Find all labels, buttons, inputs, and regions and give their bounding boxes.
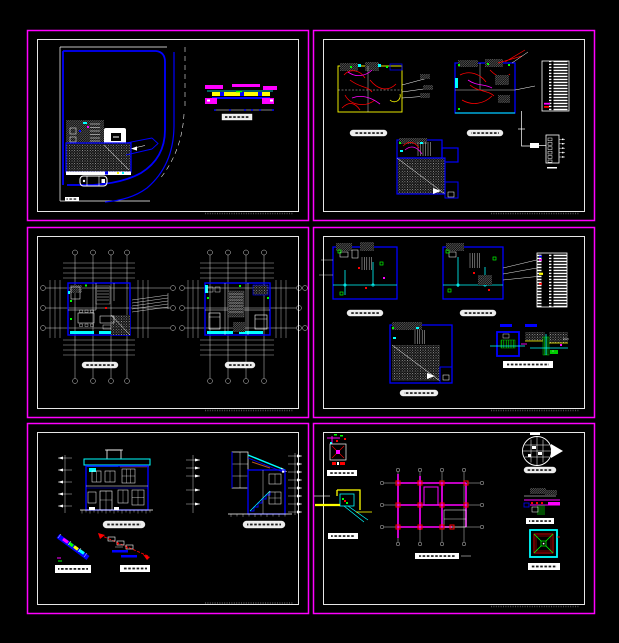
front-elevation: [80, 450, 153, 514]
sheet-border: [28, 228, 309, 418]
site-plan-drawing: [60, 47, 185, 202]
detail-title-label: [55, 565, 91, 573]
section-title-label: [243, 521, 285, 528]
distribution-panel-diagram: [518, 111, 565, 169]
sheet-elevations: [28, 424, 309, 614]
elevation-title-label: [103, 521, 145, 528]
first-floor-plan: [68, 283, 130, 335]
roof-terrace-hatch: [66, 143, 131, 172]
building-section: [228, 452, 292, 517]
plan-title-label: [467, 130, 503, 136]
electrical-plan-basement: [397, 138, 458, 198]
foundation-beam-plan: [396, 474, 468, 538]
stair-flight-detail: [57, 534, 88, 561]
detail-title-label: [327, 470, 357, 476]
detail-title-label: [120, 565, 150, 572]
road-section-detail: [205, 84, 277, 111]
detail-title-label: [524, 467, 556, 473]
plumbing-legend-table: [537, 253, 567, 307]
plan-title-label: [225, 362, 255, 368]
sheet-border: [28, 424, 309, 614]
pipes-cyan: [333, 262, 397, 295]
level-arrows-middle: [186, 455, 200, 513]
level-arrows-left: [58, 455, 72, 513]
plumbing-plan-basement: [390, 322, 452, 383]
plumbing-plan-ground: [319, 242, 397, 299]
cad-multi-sheet-drawing: [0, 0, 619, 643]
bracket-detail: [314, 490, 372, 522]
sheet-plumbing: [314, 228, 595, 418]
drawing-canvas: [0, 0, 619, 643]
pit-plan-detail: [530, 530, 560, 557]
sheet-inner-frame: [38, 433, 299, 605]
plan-title-label: [350, 130, 387, 136]
electrical-plan-ground: [338, 62, 433, 112]
plan-title-label: [415, 553, 471, 559]
sheet-floor-plans: [28, 228, 309, 418]
section-title-label: [222, 114, 252, 120]
drain-pointer: [551, 444, 563, 458]
tank-trench-detail: [490, 324, 569, 356]
exterior-ramp-lines: [132, 293, 168, 312]
plan-title-label: [460, 310, 496, 316]
sheet-electrical: [314, 31, 595, 221]
electrical-plan-second: [455, 50, 535, 113]
detail-title-label: [528, 563, 560, 570]
sheet-site-plan: [28, 31, 309, 221]
stair-step-detail: [98, 533, 150, 560]
road-edge: [105, 52, 174, 202]
joint-detail: [327, 434, 346, 465]
roof-band: [84, 459, 150, 465]
footing-section-detail: [524, 488, 560, 515]
plan-title-label: [400, 390, 438, 396]
roof-drain-detail: [523, 432, 564, 466]
wiring-red: [342, 71, 396, 110]
electrical-legend-table: [542, 61, 569, 111]
plan-title-label: [347, 310, 383, 316]
detail-title-label: [328, 533, 358, 539]
detail-title-label: [503, 361, 553, 368]
sheet-structural: [314, 424, 595, 614]
second-floor-plan: [205, 283, 270, 335]
detail-title-label: [526, 518, 554, 524]
plan-title-label: [65, 197, 79, 201]
plan-title-label: [82, 362, 118, 368]
level-arrows-right: [288, 453, 302, 515]
